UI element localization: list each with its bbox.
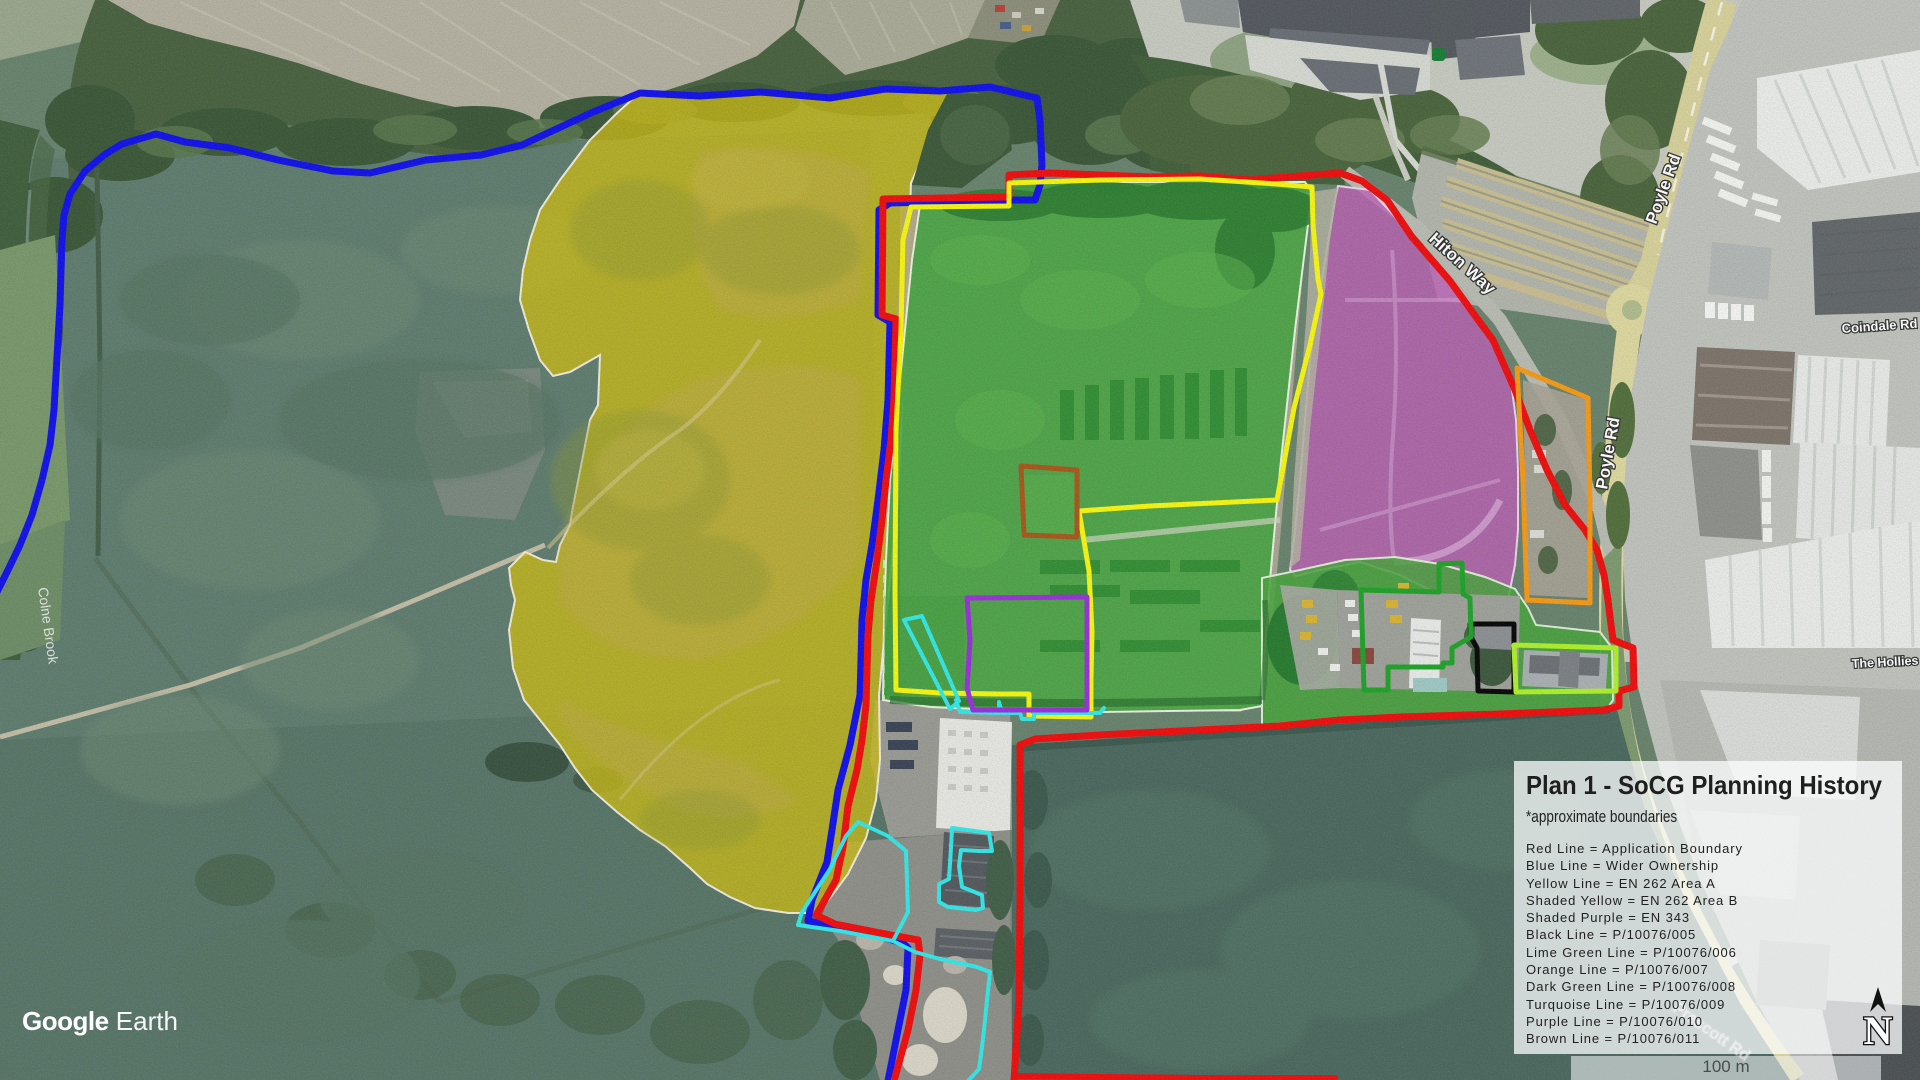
svg-text:N: N: [1864, 1008, 1893, 1053]
